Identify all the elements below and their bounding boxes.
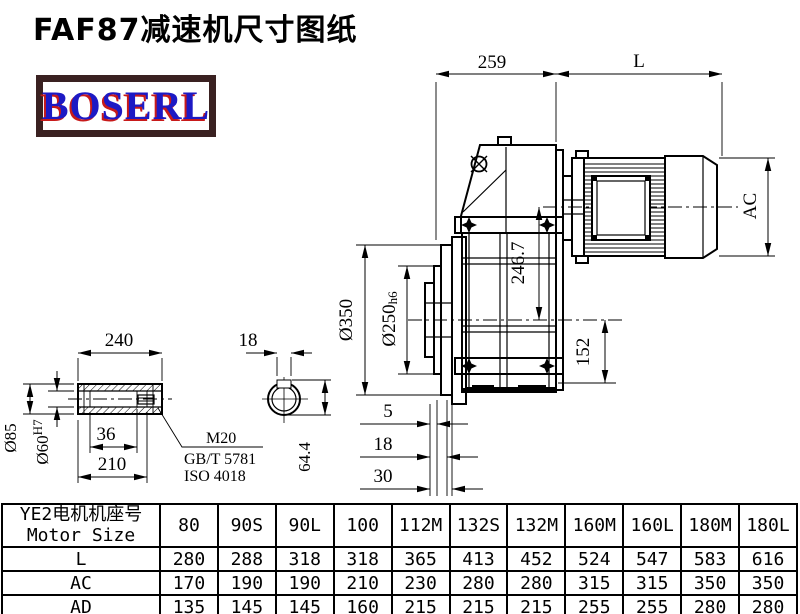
value-cell: 452 <box>507 547 565 571</box>
column-header-cell: 160M <box>565 504 623 547</box>
column-header-cell: 180M <box>681 504 739 547</box>
bolt-icon <box>461 358 477 374</box>
motor-size-header-cell: YE2电机机座号 Motor Size <box>2 504 160 547</box>
dim-motor-diameter-label: AC <box>740 193 761 219</box>
boserl-logo-text: BOSERL <box>42 86 210 126</box>
boserl-logo: BOSERL <box>36 75 216 137</box>
dim-259-label: 259 <box>478 52 507 73</box>
value-cell: 288 <box>218 547 276 571</box>
column-header-cell: 90L <box>276 504 334 547</box>
dim-depth210-label: 210 <box>98 454 127 475</box>
dim-foot-height-label: 152 <box>573 338 594 367</box>
value-cell: 145 <box>218 595 276 614</box>
vent-plug <box>498 137 511 145</box>
value-cell: 160 <box>334 595 392 614</box>
value-cell: 616 <box>739 547 797 571</box>
motor-size-header-en: Motor Size <box>3 526 159 547</box>
dim-motor-length-label: L <box>633 51 645 72</box>
extension-lines <box>23 82 775 483</box>
value-cell: 190 <box>276 571 334 595</box>
value-cell: 365 <box>392 547 450 571</box>
table-row-L: L 280 288 318 318 365 413 452 524 547 58… <box>2 547 797 571</box>
value-cell: 215 <box>450 595 508 614</box>
column-header-cell: 90S <box>218 504 276 547</box>
gearbox-main-view <box>425 137 717 496</box>
dim-axis-distance-label: 246.7 <box>508 242 529 285</box>
bolt-icon <box>539 217 555 233</box>
dim-step30-label: 30 <box>374 466 393 487</box>
dim-spigot-diameter-label: Ø250h6 <box>379 291 400 347</box>
dim-key-width-label: 18 <box>239 330 258 351</box>
flange-wall <box>452 237 466 404</box>
value-cell: 145 <box>276 595 334 614</box>
value-cell: 280 <box>507 571 565 595</box>
column-header-cell: 132M <box>507 504 565 547</box>
value-cell: 280 <box>739 595 797 614</box>
column-header-cell: 80 <box>160 504 218 547</box>
keyway-end-view <box>262 377 308 423</box>
drawing-sheet: FAF87减速机尺寸图纸 BOSERL <box>0 0 800 614</box>
dim-shaft-od-label: Ø85 <box>1 423 20 452</box>
value-cell: 350 <box>739 571 797 595</box>
bolt-icon <box>539 358 555 374</box>
value-cell: 215 <box>507 595 565 614</box>
value-cell: 210 <box>334 571 392 595</box>
value-cell: 280 <box>160 547 218 571</box>
value-cell: 318 <box>276 547 334 571</box>
value-cell: 547 <box>623 547 681 571</box>
value-cell: 315 <box>565 571 623 595</box>
value-cell: 318 <box>334 547 392 571</box>
note-gb-standard-label: GB/T 5781 <box>184 451 256 468</box>
note-thread-label: M20 <box>206 430 236 447</box>
value-cell: 255 <box>565 595 623 614</box>
column-header-cell: 112M <box>392 504 450 547</box>
value-cell: 583 <box>681 547 739 571</box>
bolt-icon <box>461 217 477 233</box>
column-header-cell: 160L <box>623 504 681 547</box>
value-cell: 255 <box>623 595 681 614</box>
dim-flange-diameter-label: Ø350 <box>336 299 357 341</box>
value-cell: 280 <box>681 595 739 614</box>
value-cell: 315 <box>623 571 681 595</box>
page-title: FAF87减速机尺寸图纸 <box>33 5 358 49</box>
dim-shaft-bore-label: Ø60H7 <box>30 419 52 465</box>
dim-keyway-height-label: 64.4 <box>295 442 314 472</box>
dim-fit36-label: 36 <box>97 424 116 445</box>
dim-step5-label: 5 <box>383 401 393 422</box>
value-cell: 524 <box>565 547 623 571</box>
value-cell: 170 <box>160 571 218 595</box>
value-cell: 280 <box>450 571 508 595</box>
motor-size-table: YE2电机机座号 Motor Size 80 90S 90L 100 112M … <box>1 503 798 614</box>
bolt-cross-icon <box>471 156 487 172</box>
note-iso-standard-label: ISO 4018 <box>184 468 246 485</box>
row-label-cell: AC <box>2 571 160 595</box>
column-header-cell: 100 <box>334 504 392 547</box>
row-label-cell: L <box>2 547 160 571</box>
row-label-cell: AD <box>2 595 160 614</box>
column-header-cell: 180L <box>739 504 797 547</box>
value-cell: 135 <box>160 595 218 614</box>
column-header-cell: 132S <box>450 504 508 547</box>
table-row-AC: AC 170 190 190 210 230 280 280 315 315 3… <box>2 571 797 595</box>
value-cell: 215 <box>392 595 450 614</box>
value-cell: 413 <box>450 547 508 571</box>
dim-step18-label: 18 <box>374 434 393 455</box>
value-cell: 230 <box>392 571 450 595</box>
motor-nameplate <box>592 176 650 240</box>
value-cell: 350 <box>681 571 739 595</box>
motor-size-header-cn: YE2电机机座号 <box>3 505 159 526</box>
dim-shaft-length-label: 240 <box>105 330 134 351</box>
table-row-AD: AD 135 145 145 160 215 215 215 255 255 2… <box>2 595 797 614</box>
value-cell: 190 <box>218 571 276 595</box>
